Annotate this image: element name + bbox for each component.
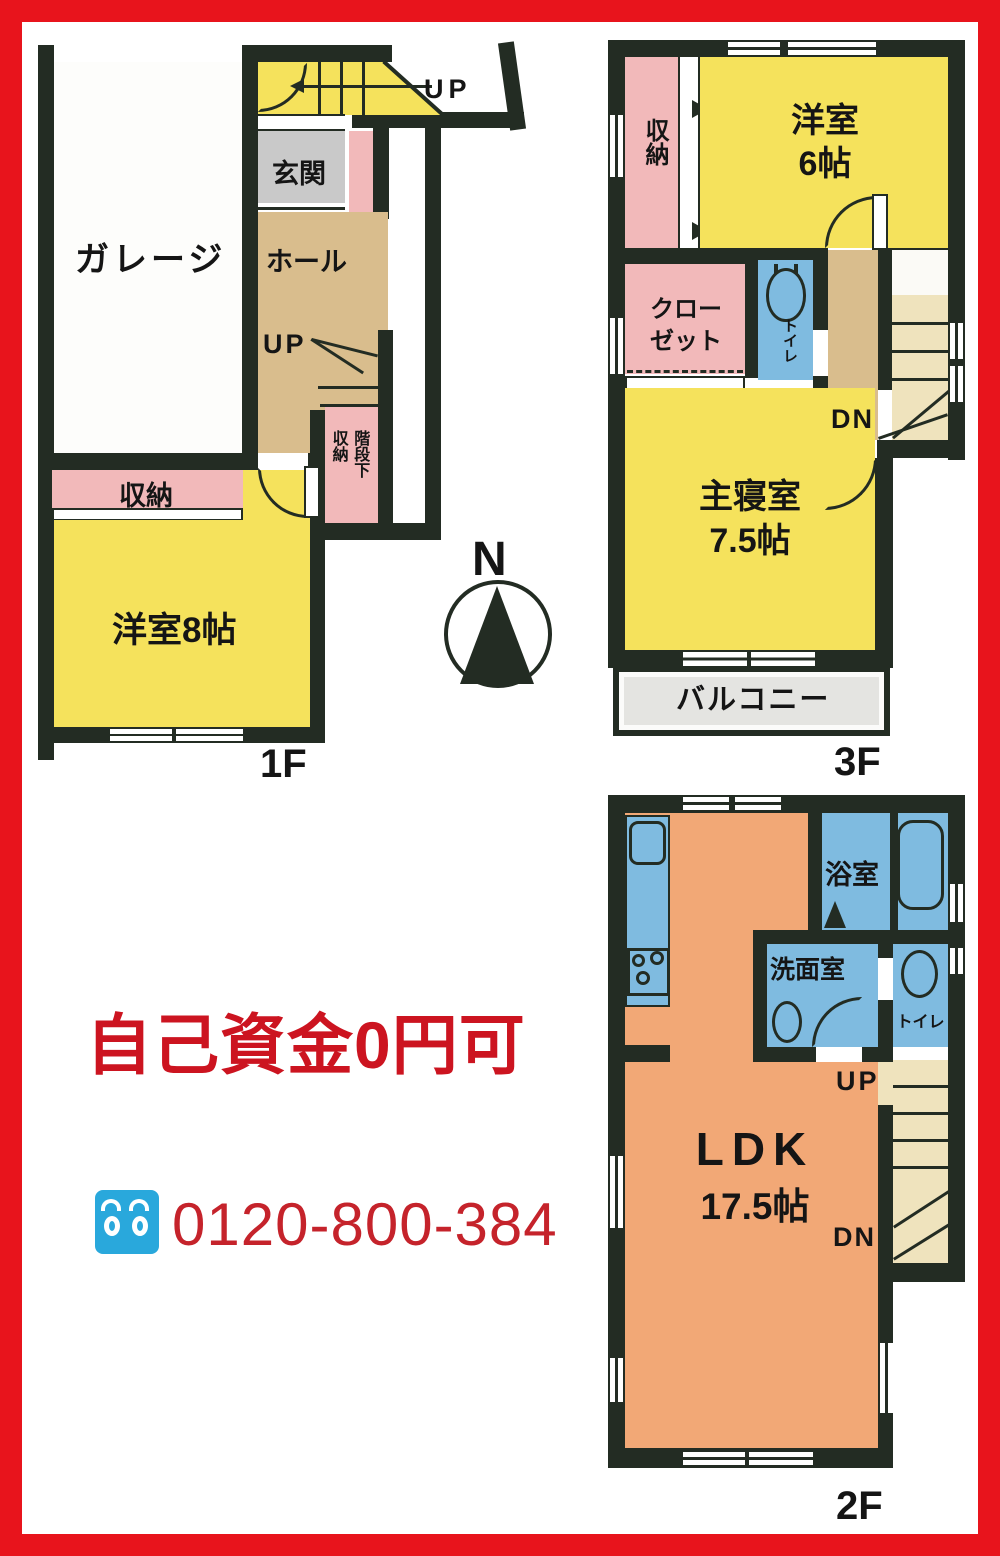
wall [948,795,965,1282]
entrance-threshold [258,114,345,131]
window [110,729,172,741]
ldk-name: LDK [640,1122,870,1176]
genkan-side-strip [349,131,373,219]
master-name: 主寝室 [645,475,855,519]
window [950,948,963,974]
bathtub-icon [897,820,944,910]
room-label-western6: 洋室 6帖 [740,100,910,185]
window [610,1156,623,1228]
step-line [258,207,345,210]
compass-needle [460,586,534,684]
floor-label-2f: 2F [836,1484,883,1529]
room-label-ldk: LDK 17.5帖 [640,1122,870,1230]
room-label-genkan: 玄関 [272,152,326,191]
window [683,1452,745,1465]
window [683,652,747,666]
stairwell-top [892,250,948,295]
stair-tread [362,62,365,115]
door-leaf [872,194,888,250]
window [610,318,623,374]
room-label-garage: ガレージ [75,232,226,281]
wall [753,930,965,944]
window [749,1452,813,1465]
door-leaf [304,466,320,518]
window [788,42,876,55]
window [880,1343,893,1413]
window [735,797,781,810]
flyer-canvas: ガレージ UP 玄関 ホール UP 階段下 収納 収納 洋室8帖 1F N [0,0,1000,1556]
room-label-hall: ホール [266,240,347,279]
wall [242,45,258,470]
door-gap [878,958,893,1000]
wall [745,260,759,378]
ldk-size: 17.5帖 [640,1176,870,1230]
wall [425,112,441,540]
basin-icon [772,1001,802,1043]
stair-tread [893,1112,948,1115]
stair-tread [893,1166,948,1169]
door-gap [816,1047,862,1062]
toilet-tank-line [794,264,798,274]
wall [373,112,389,219]
freedial-arc [129,1199,149,1211]
room-label-balcony: バルコニー [676,676,830,718]
label-stair-up: UP [263,329,307,360]
window [610,115,623,177]
window [950,323,963,359]
wall [890,813,898,930]
freedial-arc [101,1199,121,1211]
stair-entry-2f [878,1060,893,1105]
western6-size: 6帖 [740,143,910,186]
window [728,42,780,55]
stair-tread [318,62,321,115]
toilet-bowl-icon [901,950,938,998]
window [683,797,729,810]
wall [310,523,441,540]
room-label-toilet-3f: トイレ [779,318,800,363]
stair-tread [893,1139,948,1142]
stove-burner-icon [636,971,650,985]
wall [310,372,325,743]
window [610,1358,623,1402]
under-stair-text-2: 収納 [330,430,347,462]
room-label-bath: 浴室 [825,853,879,892]
stair-tread [893,1085,948,1088]
stair-treads-2f [893,1060,948,1263]
toilet-tank-line [774,264,778,274]
bath-fold-door [824,901,846,928]
wall [808,795,822,930]
label-stair-dn-3f: DN [831,404,874,435]
wall [878,1263,965,1282]
wall [608,40,965,57]
wall [753,930,767,1062]
promo-text: 自己資金0円可 [86,992,526,1088]
stair-tread [892,350,948,353]
stair-tread [892,378,948,381]
sliding-door-col [678,57,700,248]
closet-line2: ゼット [638,326,734,358]
label-porch-up: UP [424,74,472,105]
freedial-ring [104,1216,120,1236]
stove-burner-icon [632,954,645,967]
window [176,729,243,741]
window [950,366,963,402]
wall [378,330,393,523]
toilet-bowl-icon [766,268,806,322]
master-size: 7.5帖 [645,519,855,563]
room-label-western8: 洋室8帖 [112,602,236,653]
freedial-icon [95,1190,159,1254]
stair-tread [340,62,343,115]
under-stair-text-1: 階段下 [351,430,368,478]
wall [878,1105,893,1282]
room-label-closet: クロー ゼット [638,294,734,359]
wall [608,1045,670,1062]
wall [38,453,258,470]
window [751,652,815,666]
window [950,884,963,922]
floor-label-3f: 3F [834,740,881,785]
floor-label-1f: 1F [260,742,307,787]
room-label-master: 主寝室 7.5帖 [645,475,855,563]
wall [877,440,965,458]
wall [878,250,892,390]
phone-number: 0120-800-384 [172,1190,558,1259]
closet-dashed-line [627,370,743,373]
wall [242,45,392,62]
closet-line1: クロー [638,294,734,326]
wall [608,795,965,813]
door-gap [813,330,828,376]
room-label-storage: 収納 [119,474,173,513]
freedial-ring [132,1216,148,1236]
stove-burner-icon [650,951,664,965]
room-label-toilet-2f: トイレ [893,1008,948,1032]
kitchen-sink-icon [629,821,666,865]
room-label-storage-3f: 収納 [637,118,672,166]
wall [875,458,893,668]
wall [38,45,54,760]
room-label-under-stair: 階段下 収納 [327,430,370,522]
label-stair-up-2f: UP [836,1066,880,1097]
compass-n-label: N [472,532,507,587]
winder-tread [318,386,378,389]
stair-arrow-line [302,85,432,88]
stair-tread [892,322,948,325]
western6-name: 洋室 [740,100,910,143]
room-label-washroom: 洗面室 [770,950,845,986]
